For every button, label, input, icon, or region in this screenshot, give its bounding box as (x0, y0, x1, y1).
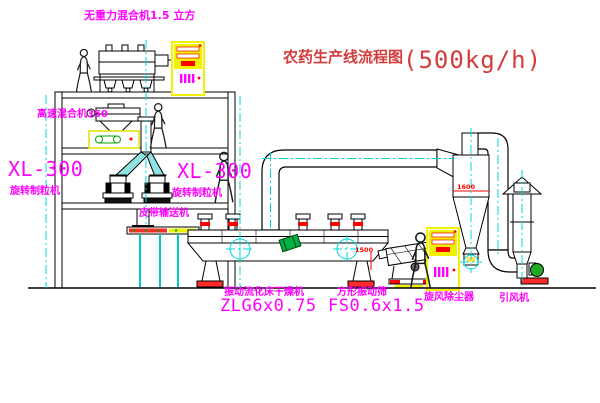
conveyor-legs (140, 234, 178, 287)
drawing-title: 农药生产线流程图(500kg/h) (283, 46, 542, 74)
dimension-cyclone: 1600 (457, 184, 475, 191)
dryer-ports (198, 214, 365, 230)
label-dryer-model: ZLG6x0.75 (220, 298, 317, 315)
label-cyclone: 旋风除尘器 (424, 293, 474, 303)
control-cabinet-ground (427, 228, 459, 290)
dimension-screen: 1500 (355, 247, 373, 254)
label-belt-conveyor: 皮带输送机 (139, 209, 189, 219)
granulator-left-machine (103, 176, 133, 203)
label-granulator-left: 旋转制粒机 (10, 187, 60, 197)
label-xl300-left: XL-300 (8, 159, 83, 179)
dryer-legs (197, 261, 374, 287)
control-cabinet-top (172, 42, 204, 95)
dryer-exhaust-duct (262, 150, 437, 230)
title-capacity: (500kg/h) (403, 46, 542, 74)
title-chinese: 农药生产线流程图 (283, 48, 403, 66)
person-figure-floor2 (150, 104, 166, 148)
label-fan: 引风机 (499, 294, 529, 304)
flow-diagram: 农药生产线流程图(500kg/h) 无重力混合机1.5 立方 高速混合机350 … (0, 0, 600, 403)
label-screen-model: FS0.6x1.5 (328, 298, 425, 315)
gravity-free-mixer (94, 45, 178, 92)
label-gravity-mixer: 无重力混合机1.5 立方 (84, 10, 195, 21)
person-figure-roof (76, 49, 91, 92)
label-granulator-right: 旋转制粒机 (172, 189, 222, 199)
top-floor-slab (55, 92, 235, 98)
label-high-speed-mixer: 高速混合机350 (37, 110, 108, 120)
label-xl300-right: XL-300 (177, 161, 252, 181)
